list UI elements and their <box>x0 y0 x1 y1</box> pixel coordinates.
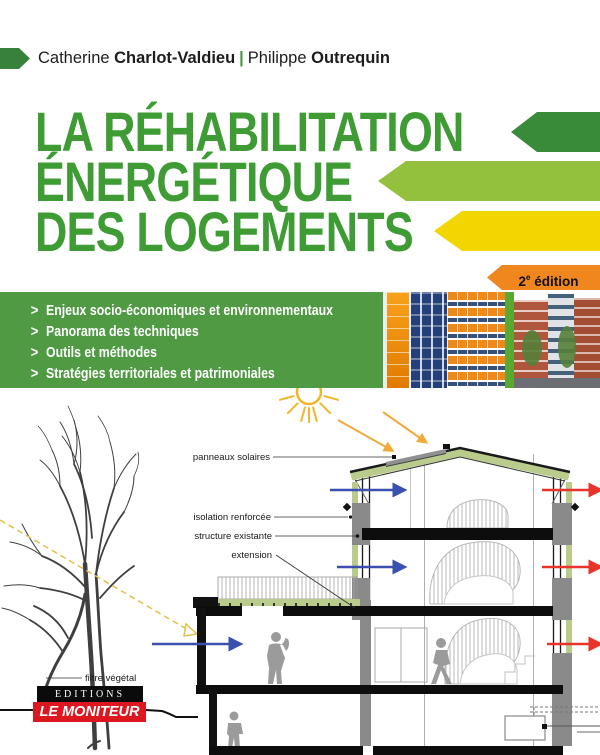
deck-door-opening <box>242 606 283 616</box>
spiral-stair-top <box>447 500 508 528</box>
authors-separator: | <box>235 49 248 67</box>
publisher-logo: LE MONITEUR <box>33 702 146 722</box>
author1-last: Charlot-Valdieu <box>114 49 235 67</box>
authors-line: Catherine Charlot-Valdieu|Philippe Outre… <box>38 47 390 69</box>
wall-tie <box>343 503 351 511</box>
label-solar-panels: panneaux solaires <box>193 452 270 463</box>
photo-glass-facade <box>411 292 447 388</box>
topics-band: >Enjeux socio-économiques et environneme… <box>0 292 383 388</box>
topic-item: >Outils et méthodes <box>0 343 383 364</box>
party-wall-pier <box>360 600 371 746</box>
sun-icon <box>280 388 338 422</box>
label-extension: extension <box>231 550 272 561</box>
label-structure: structure existante <box>194 531 272 542</box>
chevron-icon: > <box>31 301 45 322</box>
energy-arrow-yellow <box>434 211 600 251</box>
solar-gain-arrows <box>338 412 420 447</box>
extension-wall <box>197 608 206 685</box>
chevron-icon: > <box>31 322 45 343</box>
photo-orange-tower <box>387 292 409 388</box>
topic-item: >Panorama des techniques <box>0 322 383 343</box>
photo-green-divider <box>505 292 514 388</box>
energy-arrow-light-green <box>378 161 600 201</box>
basement-wall <box>209 689 217 746</box>
wall-tie <box>571 503 579 511</box>
extension-deck-insulation <box>214 599 360 606</box>
topic-item: >Stratégies territoriales et patrimonial… <box>0 364 383 385</box>
photo-tree <box>522 330 542 366</box>
author-arrow-icon <box>0 48 30 69</box>
photo-panel-facade <box>447 292 505 388</box>
author1-first: Catherine <box>38 49 110 67</box>
chevron-icon: > <box>31 343 45 364</box>
edition-badge: 2e édition <box>487 265 600 290</box>
label-vegetal-filter: filtre végétal <box>85 673 136 684</box>
photo-pavement <box>514 378 600 388</box>
publisher-imprint: EDITIONS <box>37 686 143 702</box>
label-insulation: isolation renforcée <box>193 512 271 523</box>
topic-item: >Enjeux socio-économiques et environneme… <box>0 301 383 322</box>
photo-tree <box>558 326 576 368</box>
photo-brick-building-2 <box>574 298 600 378</box>
stairwell <box>411 454 536 746</box>
roof-vent <box>443 444 450 449</box>
author2-first: Philippe <box>248 49 307 67</box>
cover-photo <box>383 292 600 388</box>
entry-door <box>375 628 427 682</box>
photo-right-scene <box>514 292 600 388</box>
chevron-icon: > <box>31 364 45 385</box>
author2-last: Outrequin <box>311 49 390 67</box>
